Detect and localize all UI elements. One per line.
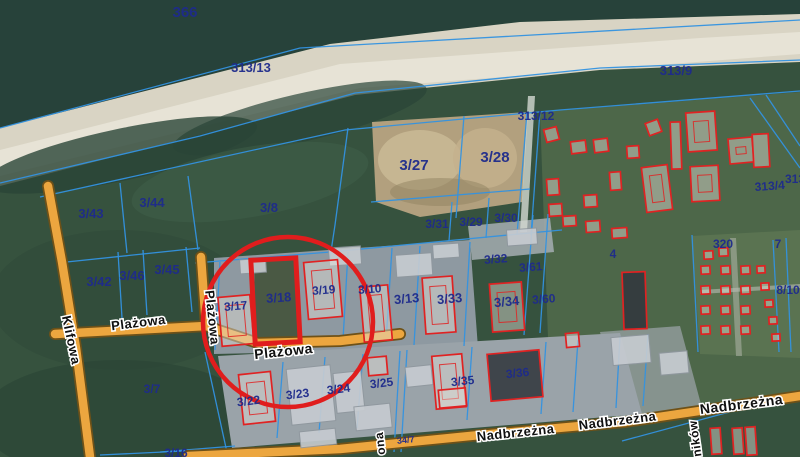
parcel-label: 313/12	[518, 109, 555, 123]
parcel-label: 366	[172, 4, 197, 21]
parcel-label: 4	[610, 247, 617, 261]
parcel-label: 3/13	[393, 290, 420, 307]
building-outline	[701, 266, 710, 274]
parcel-label: 3/46	[119, 268, 144, 283]
parcel-label: 3/45	[154, 262, 179, 277]
building-outline	[710, 428, 722, 455]
building-outline	[690, 165, 720, 201]
building-roof	[354, 403, 392, 431]
building-outline	[769, 317, 777, 324]
parcel-label: 3/8	[260, 200, 278, 215]
building-outline	[701, 326, 710, 334]
building-outline	[593, 138, 608, 153]
building-outline	[741, 286, 750, 294]
building-roof	[506, 228, 537, 246]
building-outline	[367, 356, 387, 376]
building-outline	[701, 306, 710, 314]
parcel-label: 3/30	[494, 211, 518, 225]
building-outline	[549, 204, 563, 217]
bare-dark	[390, 178, 490, 206]
parcel-label: 3/34	[493, 293, 520, 310]
building-outline	[741, 326, 750, 334]
parcel-label: 3/22	[236, 393, 261, 410]
building-outline	[721, 286, 730, 294]
building-outline	[757, 266, 765, 273]
building-outline	[721, 326, 730, 334]
parcel-label: 3/33	[436, 290, 463, 307]
parcel-label: 8/10	[776, 283, 800, 297]
parcel-label: 3/32	[484, 251, 509, 267]
parcel-label: 3/28	[480, 149, 509, 166]
building-outline	[609, 172, 621, 191]
building-outline	[584, 195, 598, 208]
building-roof	[299, 428, 336, 448]
building-outline	[565, 332, 579, 347]
building-outline	[761, 283, 769, 290]
parcel-label: 313	[785, 172, 800, 186]
parcel-label: 3/19	[312, 282, 337, 298]
building-outline	[544, 127, 560, 143]
parcel-label: 3/42	[86, 274, 111, 289]
parcel-label: 313/4	[754, 178, 785, 194]
parcel-label: 3/18	[266, 289, 292, 306]
building-outline	[745, 427, 757, 456]
parcel-label: 3/35	[450, 373, 475, 389]
parcel-label: 3/44	[139, 195, 165, 210]
building-outline	[741, 306, 750, 314]
parcel-label: 7	[775, 237, 782, 251]
building-outline	[728, 137, 754, 164]
building-roof	[659, 351, 689, 375]
building-roof	[395, 253, 432, 277]
parcel-label: 3/27	[399, 157, 428, 174]
building-roof	[433, 243, 460, 259]
parcel-label: 3/10	[358, 281, 383, 297]
parcel-label: 3/17	[223, 298, 248, 314]
street-label: ona	[372, 431, 388, 455]
parcel-label: 3/60	[532, 291, 557, 307]
building-outline	[670, 122, 682, 169]
parcel-label: 3/23	[285, 386, 310, 403]
parcel-label: 3/61	[519, 259, 544, 275]
building-outline	[721, 266, 730, 274]
building-outline	[570, 140, 586, 154]
building-outline	[686, 111, 718, 152]
cadastral-map: 366313/13313/9313/123/273/283/313/293/30…	[0, 0, 800, 457]
map-viewport[interactable]: 366313/13313/9313/123/273/283/313/293/30…	[0, 0, 800, 457]
parcel-label: 3/29	[459, 215, 483, 229]
building-outline	[765, 300, 773, 307]
parcel-label: 3/36	[505, 365, 530, 381]
building-outline	[546, 179, 559, 196]
building-outline	[563, 216, 577, 227]
building-outline	[721, 306, 730, 314]
building-outline	[732, 428, 744, 455]
building-outline	[752, 134, 770, 168]
parcel-label: 3/16	[164, 446, 188, 457]
building-outline	[438, 388, 466, 408]
building-outline	[622, 272, 647, 330]
parcel-label: 34/7	[396, 434, 414, 446]
building-outline	[701, 286, 710, 294]
parcel-label: 313/9	[660, 63, 693, 78]
parcel-label: 3/7	[144, 382, 161, 396]
building-roof	[405, 365, 433, 388]
building-roof	[611, 334, 651, 365]
parcel-label: 313/13	[231, 60, 271, 75]
building-outline	[772, 334, 780, 341]
building-outline	[586, 221, 601, 233]
parcel-label: 3/25	[369, 375, 394, 392]
building-outline	[627, 146, 640, 159]
parcel-label: 320	[713, 237, 733, 251]
building-outline	[612, 227, 628, 238]
parcel-label: 3/43	[78, 206, 103, 221]
parcel-label: 3/24	[326, 381, 351, 398]
building-outline	[741, 266, 750, 274]
parcel-label: 3/31	[425, 217, 449, 231]
building-outline	[704, 251, 713, 259]
building-outline	[641, 165, 672, 213]
